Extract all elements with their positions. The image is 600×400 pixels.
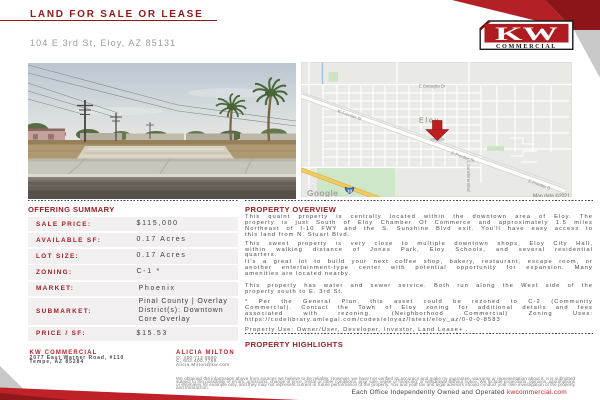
svg-text:Map data ©2021: Map data ©2021 <box>533 193 570 198</box>
svg-text:KW: KW <box>495 24 558 45</box>
svg-text:COMMERCIAL: COMMERCIAL <box>496 43 557 50</box>
svg-text:Google: Google <box>307 188 338 197</box>
svg-text:10: 10 <box>347 188 353 193</box>
svg-text:E Battaglia Dr: E Battaglia Dr <box>419 84 446 89</box>
svg-text:S Sunshine Blvd: S Sunshine Blvd <box>466 160 471 192</box>
